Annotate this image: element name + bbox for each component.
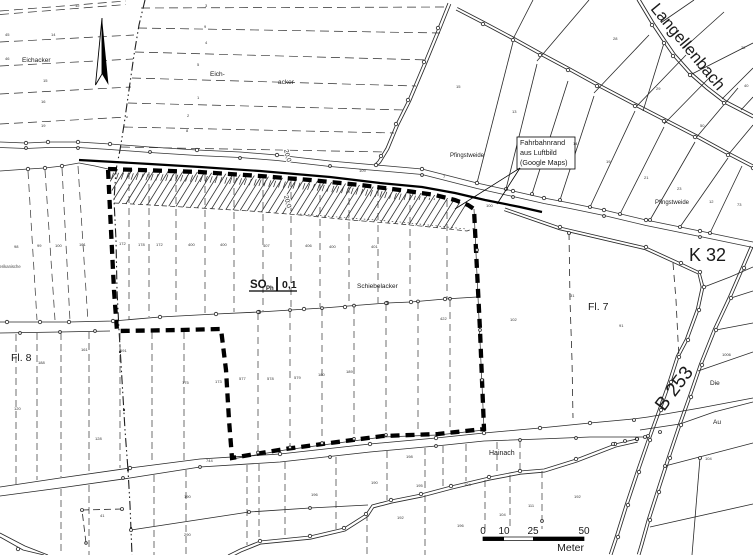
- svg-text:25: 25: [527, 526, 539, 537]
- svg-text:120: 120: [14, 406, 21, 411]
- svg-text:198: 198: [406, 454, 413, 459]
- svg-text:196: 196: [457, 523, 464, 528]
- svg-text:merikanische: merikanische: [0, 264, 21, 269]
- svg-text:73: 73: [737, 202, 742, 207]
- svg-text:50: 50: [700, 123, 705, 128]
- svg-text:acker: acker: [278, 79, 295, 86]
- svg-text:Eich-: Eich-: [210, 71, 225, 78]
- svg-text:41: 41: [100, 513, 105, 518]
- svg-text:0,1: 0,1: [282, 279, 297, 291]
- svg-text:172: 172: [156, 242, 163, 247]
- svg-text:21: 21: [644, 175, 649, 180]
- svg-text:99: 99: [37, 243, 42, 248]
- svg-text:15: 15: [43, 78, 48, 83]
- svg-text:aus Luftbild: aus Luftbild: [520, 148, 557, 157]
- svg-text:190: 190: [184, 494, 191, 499]
- svg-text:Pfingstweide: Pfingstweide: [450, 153, 485, 159]
- svg-text:422: 422: [440, 316, 447, 321]
- svg-text:196: 196: [311, 492, 318, 497]
- svg-text:104: 104: [464, 482, 471, 487]
- svg-text:104: 104: [705, 456, 712, 461]
- svg-text:100: 100: [55, 243, 62, 248]
- svg-text:407: 407: [263, 243, 270, 248]
- svg-text:188: 188: [38, 360, 45, 365]
- svg-text:Meter: Meter: [557, 542, 584, 554]
- svg-text:Pfingstweide: Pfingstweide: [655, 200, 690, 206]
- svg-text:189: 189: [346, 369, 353, 374]
- svg-text:180: 180: [318, 372, 325, 377]
- svg-text:406: 406: [305, 243, 312, 248]
- svg-text:100: 100: [486, 203, 493, 208]
- svg-text:401: 401: [371, 244, 378, 249]
- svg-text:191: 191: [120, 348, 127, 353]
- svg-text:23: 23: [677, 186, 682, 191]
- svg-text:14: 14: [573, 141, 578, 146]
- svg-text:128: 128: [95, 436, 102, 441]
- svg-text:98: 98: [14, 244, 19, 249]
- svg-text:40: 40: [744, 83, 749, 88]
- svg-text:Die: Die: [710, 380, 720, 387]
- svg-text:1006: 1006: [722, 352, 732, 357]
- svg-text:Fl. 7: Fl. 7: [588, 301, 609, 313]
- svg-text:(Google Maps): (Google Maps): [520, 158, 568, 167]
- svg-text:31: 31: [570, 293, 575, 298]
- svg-text:SO: SO: [250, 279, 267, 291]
- svg-text:744: 744: [206, 458, 213, 463]
- svg-text:15: 15: [456, 84, 461, 89]
- svg-text:111: 111: [528, 503, 535, 508]
- svg-text:161: 161: [81, 347, 88, 352]
- svg-text:102: 102: [510, 317, 517, 322]
- svg-text:0: 0: [480, 526, 486, 537]
- svg-text:91: 91: [619, 323, 624, 328]
- svg-text:172: 172: [119, 241, 126, 246]
- svg-text:14: 14: [51, 32, 56, 37]
- svg-text:Eichacker: Eichacker: [22, 57, 51, 64]
- svg-text:178: 178: [138, 242, 145, 247]
- svg-text:400: 400: [220, 242, 227, 247]
- svg-text:19: 19: [41, 123, 46, 128]
- svg-text:12: 12: [75, 3, 80, 8]
- svg-text:10: 10: [498, 526, 510, 537]
- svg-text:29: 29: [656, 86, 661, 91]
- svg-text:192: 192: [574, 494, 581, 499]
- svg-text:13: 13: [512, 109, 517, 114]
- svg-text:Schiebelacker: Schiebelacker: [357, 283, 399, 290]
- svg-text:192: 192: [397, 515, 404, 520]
- svg-text:400: 400: [188, 242, 195, 247]
- svg-text:577: 577: [239, 376, 246, 381]
- svg-text:109: 109: [359, 168, 366, 173]
- svg-text:22: 22: [741, 45, 746, 50]
- svg-text:46: 46: [5, 56, 10, 61]
- svg-text:16: 16: [41, 99, 46, 104]
- svg-text:175: 175: [182, 380, 189, 385]
- svg-text:Hainach: Hainach: [489, 450, 515, 457]
- svg-text:45: 45: [5, 32, 10, 37]
- svg-text:50: 50: [578, 526, 590, 537]
- svg-text:Fl. 8: Fl. 8: [11, 352, 32, 364]
- svg-text:12: 12: [709, 199, 714, 204]
- svg-text:579: 579: [294, 375, 301, 380]
- svg-text:104: 104: [499, 512, 506, 517]
- svg-text:195: 195: [416, 483, 423, 488]
- svg-text:Au: Au: [713, 419, 721, 426]
- svg-text:19: 19: [606, 159, 611, 164]
- svg-text:101: 101: [79, 242, 86, 247]
- svg-text:190: 190: [371, 480, 378, 485]
- svg-text:173: 173: [215, 379, 222, 384]
- svg-text:400: 400: [329, 244, 336, 249]
- svg-text:290: 290: [184, 532, 191, 537]
- svg-text:K 32: K 32: [689, 245, 726, 265]
- svg-text:28: 28: [613, 36, 618, 41]
- svg-text:Fahrbahnrand: Fahrbahnrand: [520, 138, 565, 147]
- svg-text:578: 578: [267, 376, 274, 381]
